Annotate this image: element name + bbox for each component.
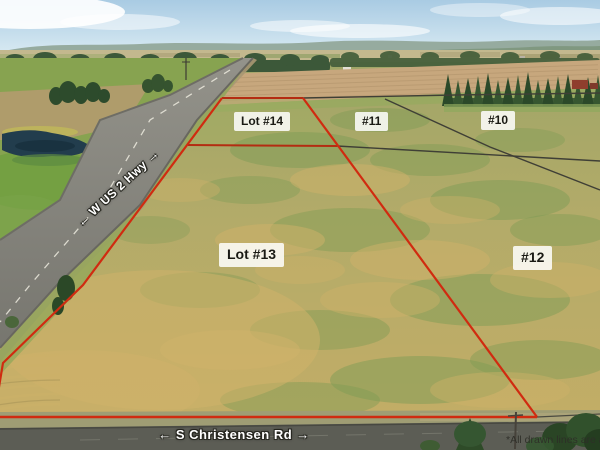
cross-street-road-label: ← S Christensen Rd →	[153, 427, 315, 442]
roadside-tree	[57, 275, 75, 301]
lot-label-10: #10	[481, 111, 515, 130]
aerial-lot-map-photo: Lot #14 #11 #10 Lot #13 #12 ← W US 2 Hwy…	[0, 0, 600, 450]
aerial-photo-canvas	[0, 0, 600, 450]
red-barn	[572, 80, 588, 89]
lot-label-14: Lot #14	[234, 112, 290, 131]
lot-label-11: #11	[355, 112, 388, 131]
lot-label-13: Lot #13	[219, 243, 284, 267]
lot-label-12: #12	[513, 246, 552, 270]
disclaimer-text: *All drawn lines are a	[506, 434, 600, 446]
